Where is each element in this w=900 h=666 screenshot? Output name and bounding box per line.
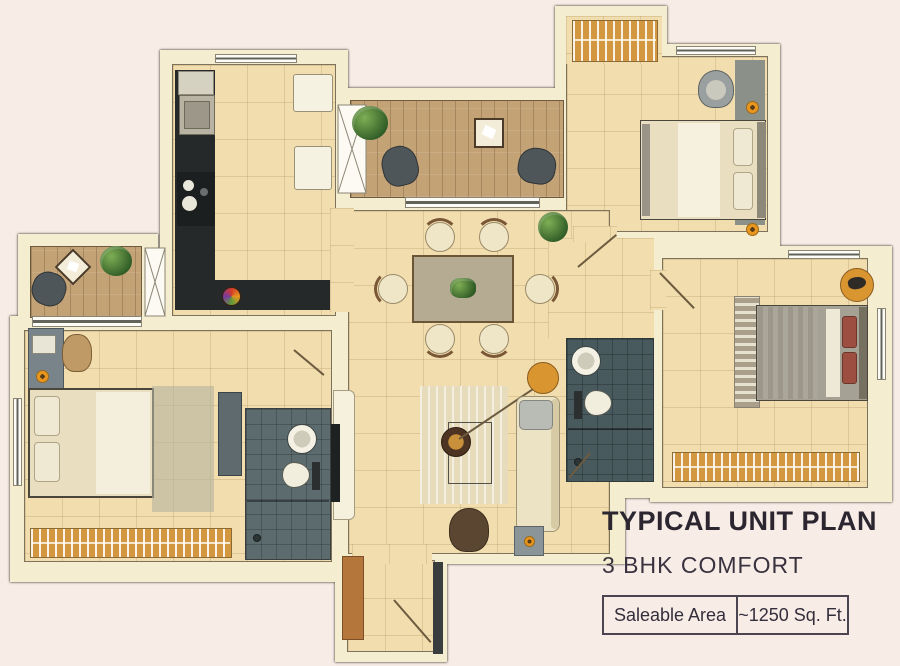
foyer-wall-dark (433, 562, 443, 654)
bed3-blanket-fold (758, 307, 818, 399)
armchair-icon (449, 508, 489, 552)
bed1-sheet (678, 123, 720, 217)
shoe-cabinet-icon (342, 556, 364, 640)
bed2-rug (152, 386, 214, 512)
refrigerator-icon (293, 74, 333, 112)
duct-shaft-icon (144, 247, 166, 317)
desk-stool-icon (36, 370, 49, 383)
stove-burner (183, 180, 194, 191)
dining-chair-icon (479, 324, 509, 354)
stove-burner (182, 196, 197, 211)
kitchen-counter-bottom (175, 280, 330, 310)
bedside-lamp-icon (746, 223, 759, 236)
balcony-left-slider-window (32, 316, 142, 327)
living-foyer-opening (352, 544, 432, 564)
shower-partition (247, 500, 329, 502)
plant-icon (538, 212, 568, 242)
table-centerpiece-icon (450, 278, 476, 298)
kitchen-sink-basin (184, 101, 210, 129)
side-table-decor (524, 536, 535, 547)
plan-title: TYPICAL UNIT PLAN (602, 506, 877, 537)
kitchen-cabinet-icon (294, 146, 332, 190)
bedside-lamp-icon (746, 101, 759, 114)
kitchen-window (215, 54, 297, 63)
dining-chair-icon (378, 274, 408, 304)
wardrobe-icon (672, 452, 860, 482)
area-label-cell: Saleable Area (604, 597, 738, 633)
bed2-pillow (34, 396, 60, 436)
bed2-sheet (96, 392, 150, 494)
plant-icon (100, 246, 132, 276)
toilet-tank (574, 391, 582, 419)
hallway-floor (548, 238, 654, 338)
plant-icon (352, 106, 388, 140)
dining-chair-icon (525, 274, 555, 304)
shower-partition (568, 428, 652, 430)
kitchen-counter-top-slab (178, 71, 214, 95)
wardrobe-icon (572, 20, 658, 62)
balcony-top-slider-window (405, 197, 540, 208)
bed1-pillow (733, 128, 753, 166)
stove-burner (200, 188, 208, 196)
bed3-pillow (842, 316, 857, 348)
saleable-area-table: Saleable Area ~1250 Sq. Ft. (602, 595, 849, 635)
shower-drain-icon (253, 534, 261, 542)
bedroom3-window-top (788, 250, 860, 259)
tall-cabinet-icon (218, 392, 242, 476)
dining-chair-icon (479, 222, 509, 252)
area-value-cell: ~1250 Sq. Ft. (738, 597, 847, 633)
dining-chair-icon (425, 324, 455, 354)
tv-icon (331, 424, 340, 502)
bed1-bench (642, 124, 650, 216)
arc-lamp-icon (527, 362, 559, 394)
washbasin-icon (287, 424, 317, 454)
washbasin-icon (571, 346, 601, 376)
info-panel: TYPICAL UNIT PLAN 3 BHK COMFORT Saleable… (602, 506, 877, 635)
bed3-headboard (859, 307, 867, 399)
bed1-headboard (757, 122, 766, 218)
dining-chair-icon (425, 222, 455, 252)
desk-chair-icon (62, 334, 92, 372)
bed2-pillow (34, 442, 60, 482)
bed3-pillow (842, 352, 857, 384)
fruit-bowl-icon (222, 287, 241, 306)
kitchen-dining-opening (330, 208, 354, 312)
bedroom3-window-right (877, 308, 886, 380)
bed3-sheet (826, 309, 840, 397)
floor-plan-image: TYPICAL UNIT PLAN 3 BHK COMFORT Saleable… (0, 0, 900, 666)
desk-lamp-icon (32, 335, 56, 354)
sofa-pillow (519, 400, 553, 430)
bedroom2-window-left (13, 398, 22, 486)
toilet-tank (312, 462, 320, 490)
plan-subtitle: 3 BHK COMFORT (602, 552, 877, 579)
bedroom1-window (676, 46, 756, 55)
bed1-pillow (733, 172, 753, 210)
bedroom1-chair-seat (706, 80, 726, 100)
wardrobe-icon (30, 528, 232, 558)
